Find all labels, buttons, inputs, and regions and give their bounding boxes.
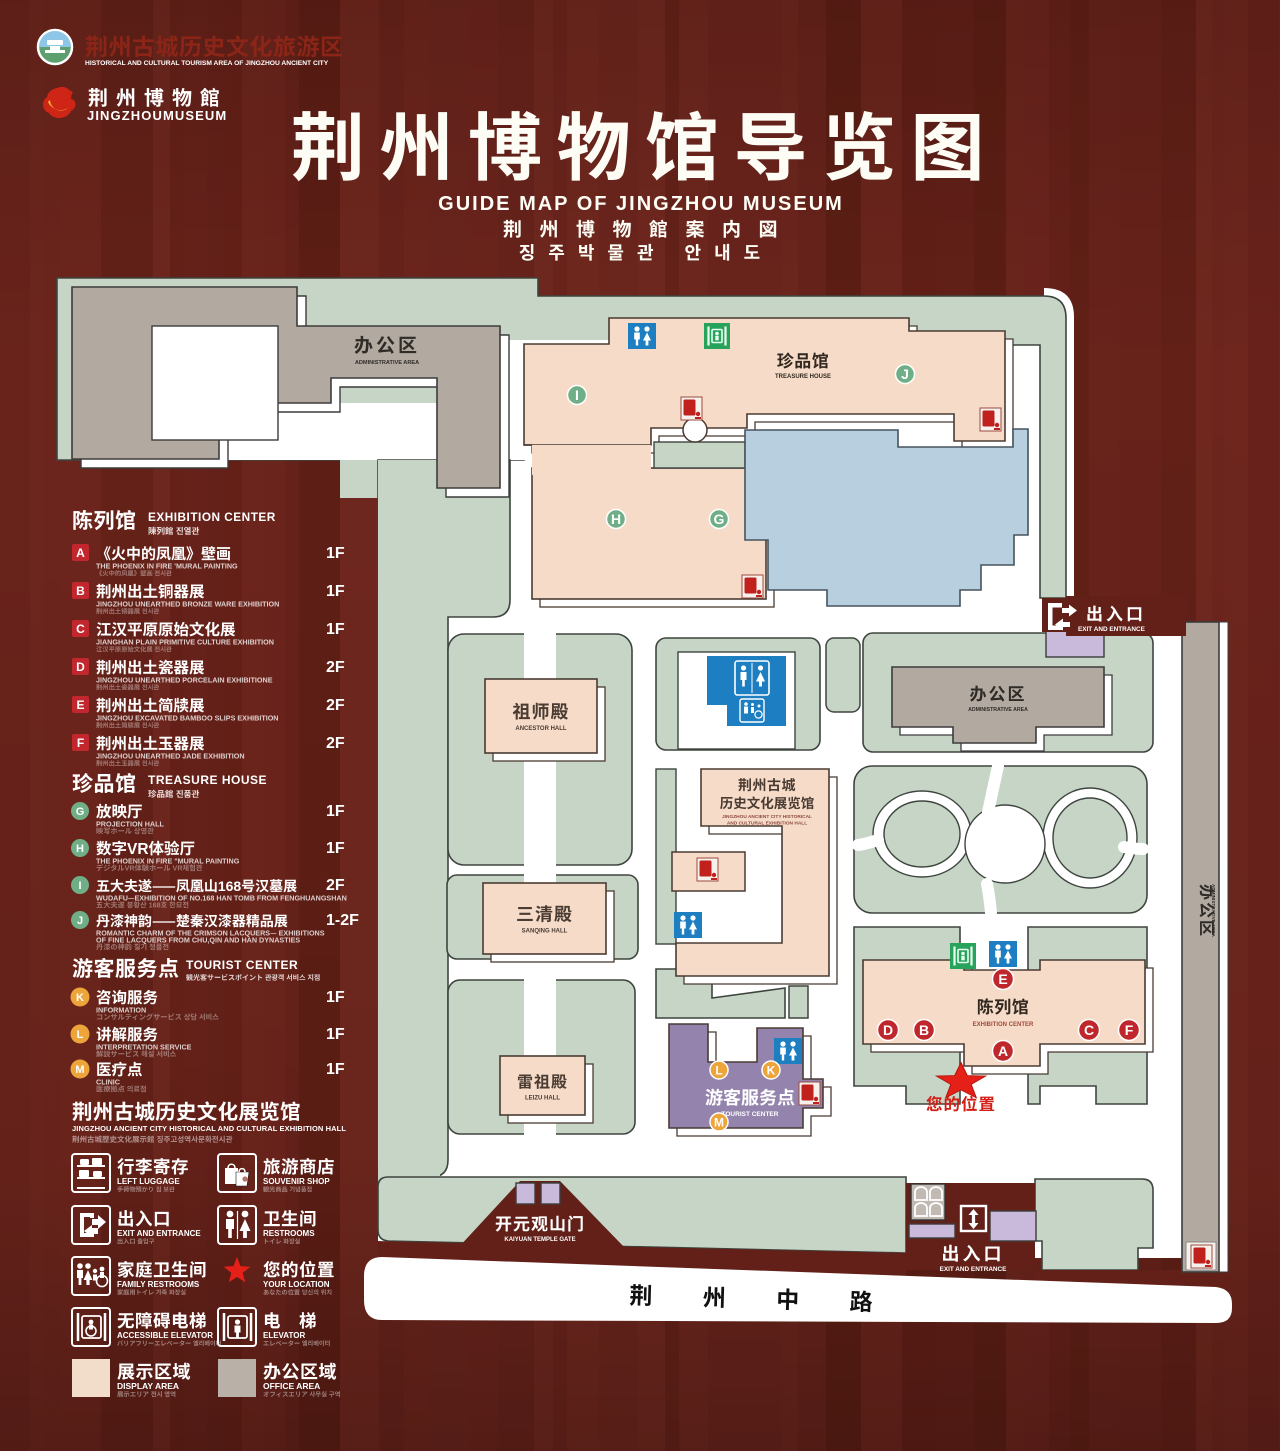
svg-text:行李寄存: 行李寄存 [117, 1154, 189, 1179]
svg-text:観光客サービスポイント 관광객 서비스 지점: 観光客サービスポイント 관광객 서비스 지점 [186, 973, 320, 983]
svg-text:B: B [919, 1022, 929, 1038]
svg-text:卫生间: 卫生间 [263, 1206, 317, 1231]
svg-text:1F: 1F [326, 583, 345, 600]
svg-text:エレベーター 엘리베이터: エレベーター 엘리베이터 [263, 1339, 331, 1348]
svg-text:珍品馆: 珍品馆 [72, 768, 137, 798]
svg-text:出入口: 出入口 [942, 1240, 1005, 1266]
svg-text:H: H [76, 843, 84, 855]
svg-text:J: J [901, 366, 909, 382]
svg-text:荆州古城历史文化旅游区: 荆州古城历史文化旅游区 [85, 28, 344, 62]
svg-text:荆州出土玉器展 전시관: 荆州出土玉器展 전시관 [96, 759, 159, 768]
svg-text:D: D [76, 660, 85, 674]
svg-text:出入口 출입구: 出入口 출입구 [117, 1237, 155, 1246]
svg-text:无障碍电梯: 无障碍电梯 [117, 1308, 207, 1333]
svg-text:出入口: 出入口 [1086, 600, 1146, 625]
svg-text:办公区: 办公区 [354, 331, 420, 358]
svg-text:展示エリア 전시 영역: 展示エリア 전시 영역 [117, 1390, 176, 1399]
svg-text:HISTORICAL AND CULTURAL TOURIS: HISTORICAL AND CULTURAL TOURISM AREA OF … [85, 60, 329, 67]
svg-text:징주박물관 안내도: 징주박물관 안내도 [519, 239, 773, 265]
svg-text:G: G [76, 806, 85, 818]
svg-text:荆州博物館案内図: 荆州博物館案内図 [503, 215, 795, 242]
svg-text:コンサルティングサービス 상담 서비스: コンサルティングサービス 상담 서비스 [96, 1013, 219, 1023]
svg-text:1F: 1F [326, 1061, 345, 1078]
svg-text:E: E [998, 971, 1007, 987]
svg-text:KAIYUAN TEMPLE GATE: KAIYUAN TEMPLE GATE [504, 1237, 575, 1243]
svg-text:五大夫遂 봉황산 168호 한묘전: 五大夫遂 봉황산 168호 한묘전 [96, 901, 189, 911]
svg-text:SANQING HALL: SANQING HALL [522, 929, 568, 935]
svg-text:あなたの位置 당신의 위치: あなたの位置 당신의 위치 [263, 1288, 332, 1297]
svg-text:オフィスエリア 사무실 구역: オフィスエリア 사무실 구역 [263, 1390, 341, 1399]
svg-text:家庭用トイレ 가족 화장실: 家庭用トイレ 가족 화장실 [117, 1288, 186, 1297]
svg-text:荆州出土瓷器展 전시관: 荆州出土瓷器展 전시관 [96, 683, 159, 692]
svg-text:三清殿: 三清殿 [516, 901, 573, 927]
svg-text:デジタルVR体験ホール VR체험관: デジタルVR体験ホール VR체험관 [96, 864, 203, 874]
svg-text:ADMINISTRATIVE AREA: ADMINISTRATIVE AREA [1211, 884, 1216, 938]
svg-text:江汉平原原始文化展 전시관: 江汉平原原始文化展 전시관 [96, 645, 172, 654]
svg-text:JINGZHOU ANCIENT CITY HISTORIC: JINGZHOU ANCIENT CITY HISTORICAL AND CUL… [72, 1124, 346, 1133]
svg-text:祖师殿: 祖师殿 [513, 698, 570, 724]
svg-text:丹漆の神韵 칠기 정품전: 丹漆の神韵 칠기 정품전 [96, 943, 169, 953]
svg-text:ADMINISTRATIVE AREA: ADMINISTRATIVE AREA [968, 707, 1028, 713]
svg-text:L: L [77, 1029, 84, 1041]
svg-text:TOURIST CENTER: TOURIST CENTER [186, 958, 298, 972]
svg-text:EXHIBITION CENTER: EXHIBITION CENTER [148, 510, 276, 524]
svg-text:ADMINISTRATIVE AREA: ADMINISTRATIVE AREA [355, 360, 419, 366]
svg-text:2F: 2F [326, 659, 345, 676]
svg-text:GUIDE MAP OF JINGZHOU MUSEUM: GUIDE MAP OF JINGZHOU MUSEUM [438, 193, 844, 215]
svg-text:陳列館 진열관: 陳列館 진열관 [148, 525, 200, 537]
svg-text:办公区: 办公区 [970, 680, 1027, 705]
svg-text:トイレ 화장실: トイレ 화장실 [263, 1237, 301, 1246]
svg-text:您的位置: 您的位置 [263, 1257, 335, 1282]
svg-text:电 梯: 电 梯 [263, 1308, 317, 1333]
svg-text:医療拠点 의료점: 医療拠点 의료점 [96, 1085, 147, 1095]
svg-text:2F: 2F [326, 877, 345, 894]
svg-text:荆州博物馆导览图: 荆州博物馆导览图 [291, 89, 999, 196]
svg-text:観光商品 기념품점: 観光商品 기념품점 [263, 1185, 313, 1194]
svg-text:2F: 2F [326, 735, 345, 752]
svg-text:1F: 1F [326, 840, 345, 857]
svg-text:1F: 1F [326, 545, 345, 562]
svg-text:B: B [76, 584, 85, 598]
svg-text:游客服务点: 游客服务点 [705, 1084, 795, 1110]
svg-text:映写ホール 상영관: 映写ホール 상영관 [96, 827, 154, 837]
svg-text:1F: 1F [326, 989, 345, 1006]
svg-text:A: A [998, 1043, 1008, 1059]
svg-text:F: F [77, 736, 84, 750]
svg-text:荆州出土简牍展 전시관: 荆州出土简牍展 전시관 [96, 721, 159, 730]
svg-text:游客服务点: 游客服务点 [72, 953, 180, 983]
svg-text:出入口: 出入口 [117, 1206, 171, 1231]
svg-text:陈列馆: 陈列馆 [72, 505, 137, 535]
svg-text:K: K [767, 1063, 776, 1077]
svg-text:1F: 1F [326, 803, 345, 820]
svg-text:雷祖殿: 雷祖殿 [517, 1069, 568, 1093]
svg-text:E: E [76, 698, 84, 712]
svg-text:J: J [77, 915, 83, 927]
svg-text:珍品馆: 珍品馆 [777, 347, 830, 372]
svg-text:L: L [715, 1063, 722, 1077]
svg-text:旅游商店: 旅游商店 [263, 1154, 335, 1179]
svg-text:EXIT AND ENTRANCE: EXIT AND ENTRANCE [940, 1266, 1008, 1273]
svg-text:珍品館 진품관: 珍品館 진품관 [148, 788, 200, 800]
svg-text:陈列馆: 陈列馆 [977, 993, 1030, 1018]
svg-text:TOURIST CENTER: TOURIST CENTER [722, 1111, 779, 1118]
svg-text:EXHIBITION CENTER: EXHIBITION CENTER [973, 1022, 1034, 1028]
svg-text:C: C [76, 622, 85, 636]
svg-text:JINGZHOUMUSEUM: JINGZHOUMUSEUM [87, 108, 227, 123]
svg-text:1-2F: 1-2F [326, 912, 359, 929]
svg-text:I: I [78, 880, 81, 892]
svg-text:M: M [714, 1115, 724, 1129]
svg-text:荆州出土铜器展 전시관: 荆州出土铜器展 전시관 [96, 607, 159, 616]
svg-text:开元观山门: 开元观山门 [495, 1210, 585, 1235]
svg-text:I: I [575, 387, 579, 403]
svg-text:荆州博物館: 荆州博物館 [88, 82, 228, 111]
svg-text:TREASURE HOUSE: TREASURE HOUSE [775, 374, 831, 380]
svg-text:F: F [1125, 1022, 1134, 1038]
svg-text:1F: 1F [326, 621, 345, 638]
svg-text:D: D [883, 1022, 893, 1038]
svg-text:G: G [714, 511, 725, 527]
svg-text:1F: 1F [326, 1026, 345, 1043]
svg-text:2F: 2F [326, 697, 345, 714]
svg-text:手荷物預かり 짐 보관: 手荷物預かり 짐 보관 [117, 1185, 175, 1194]
svg-text:M: M [75, 1064, 84, 1076]
svg-text:《火中的凤凰》壁画 전시관: 《火中的凤凰》壁画 전시관 [96, 569, 172, 578]
svg-text:荆州古城历史文化展览馆: 荆州古城历史文化展览馆 [72, 1095, 301, 1125]
svg-text:TREASURE HOUSE: TREASURE HOUSE [148, 773, 267, 787]
svg-text:EXIT AND ENTRANCE: EXIT AND ENTRANCE [1078, 626, 1146, 633]
svg-text:历史文化展览馆: 历史文化展览馆 [720, 792, 815, 812]
svg-text:バリアフリーエレベーター 엘리베이터: バリアフリーエレベーター 엘리베이터 [117, 1339, 222, 1348]
svg-text:AND CULTURAL EXHIBITION HALL: AND CULTURAL EXHIBITION HALL [727, 821, 807, 827]
svg-text:家庭卫生间: 家庭卫生间 [117, 1257, 207, 1282]
svg-text:LEIZU HALL: LEIZU HALL [525, 1096, 560, 1102]
svg-text:ANCESTOR HALL: ANCESTOR HALL [515, 726, 567, 732]
svg-text:JINGZHOU ANCIENT CITY HISTORIC: JINGZHOU ANCIENT CITY HISTORICAL [722, 814, 812, 820]
svg-text:K: K [76, 992, 84, 1004]
svg-text:您的位置: 您的位置 [926, 1091, 996, 1115]
svg-text:C: C [1084, 1022, 1094, 1038]
svg-text:A: A [76, 546, 85, 560]
svg-text:H: H [611, 511, 621, 527]
svg-text:荆州古城歴史文化展示館 징주고성역사문화전시관: 荆州古城歴史文化展示館 징주고성역사문화전시관 [72, 1134, 233, 1145]
